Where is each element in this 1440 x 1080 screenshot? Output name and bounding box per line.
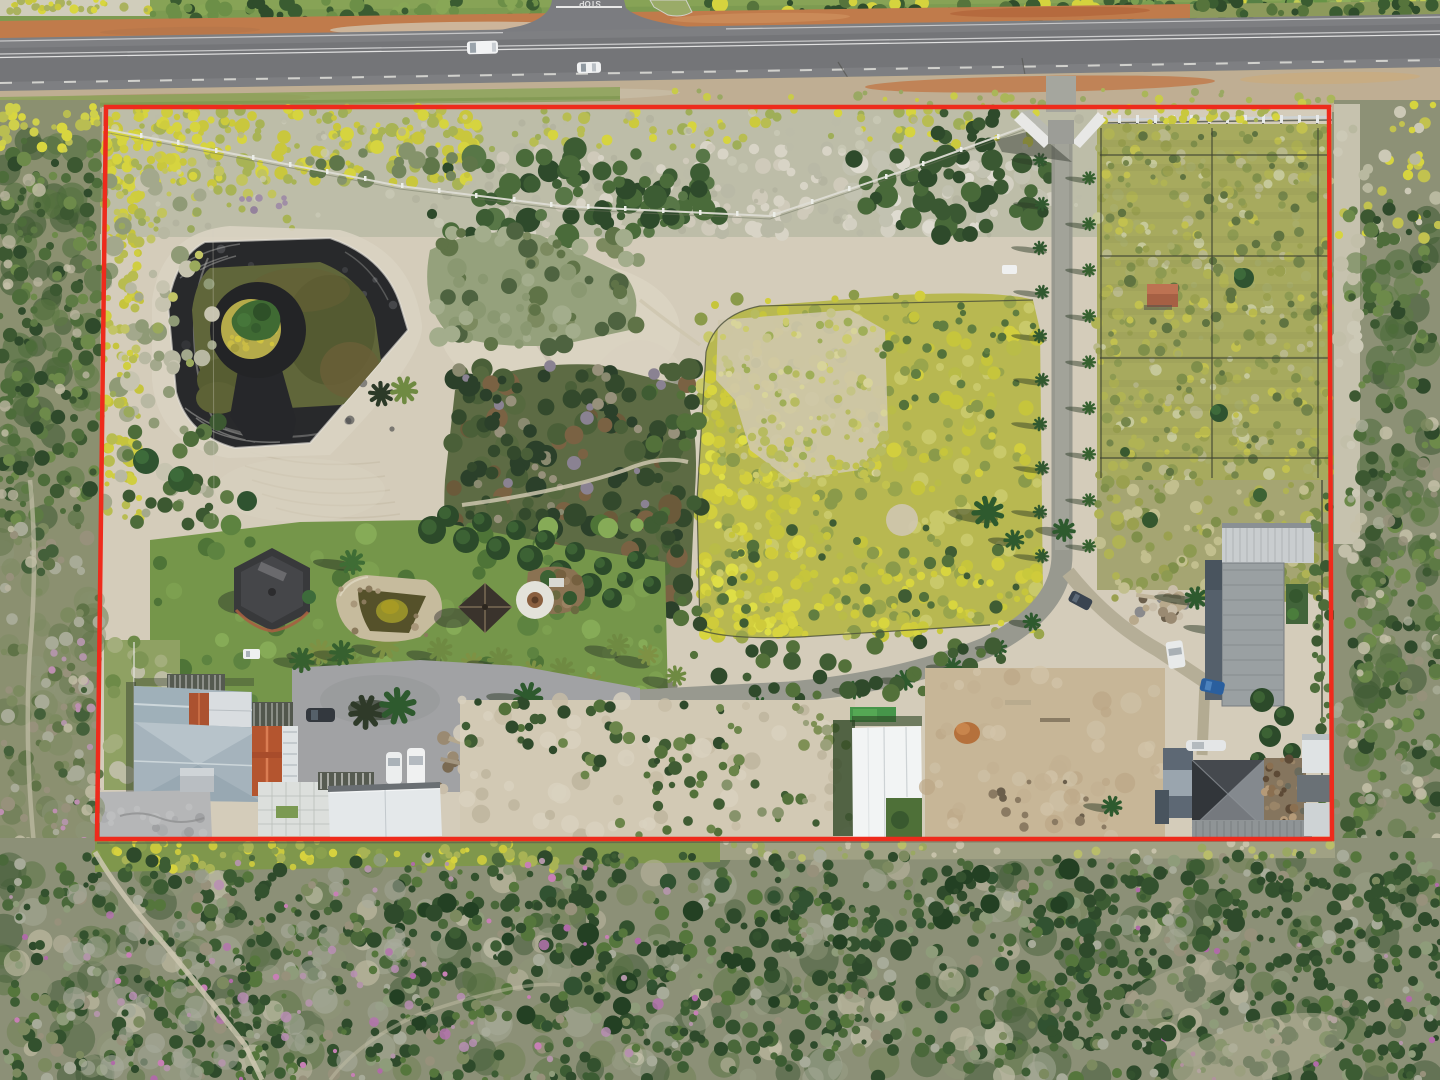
svg-text:STOP: STOP — [579, 0, 601, 8]
